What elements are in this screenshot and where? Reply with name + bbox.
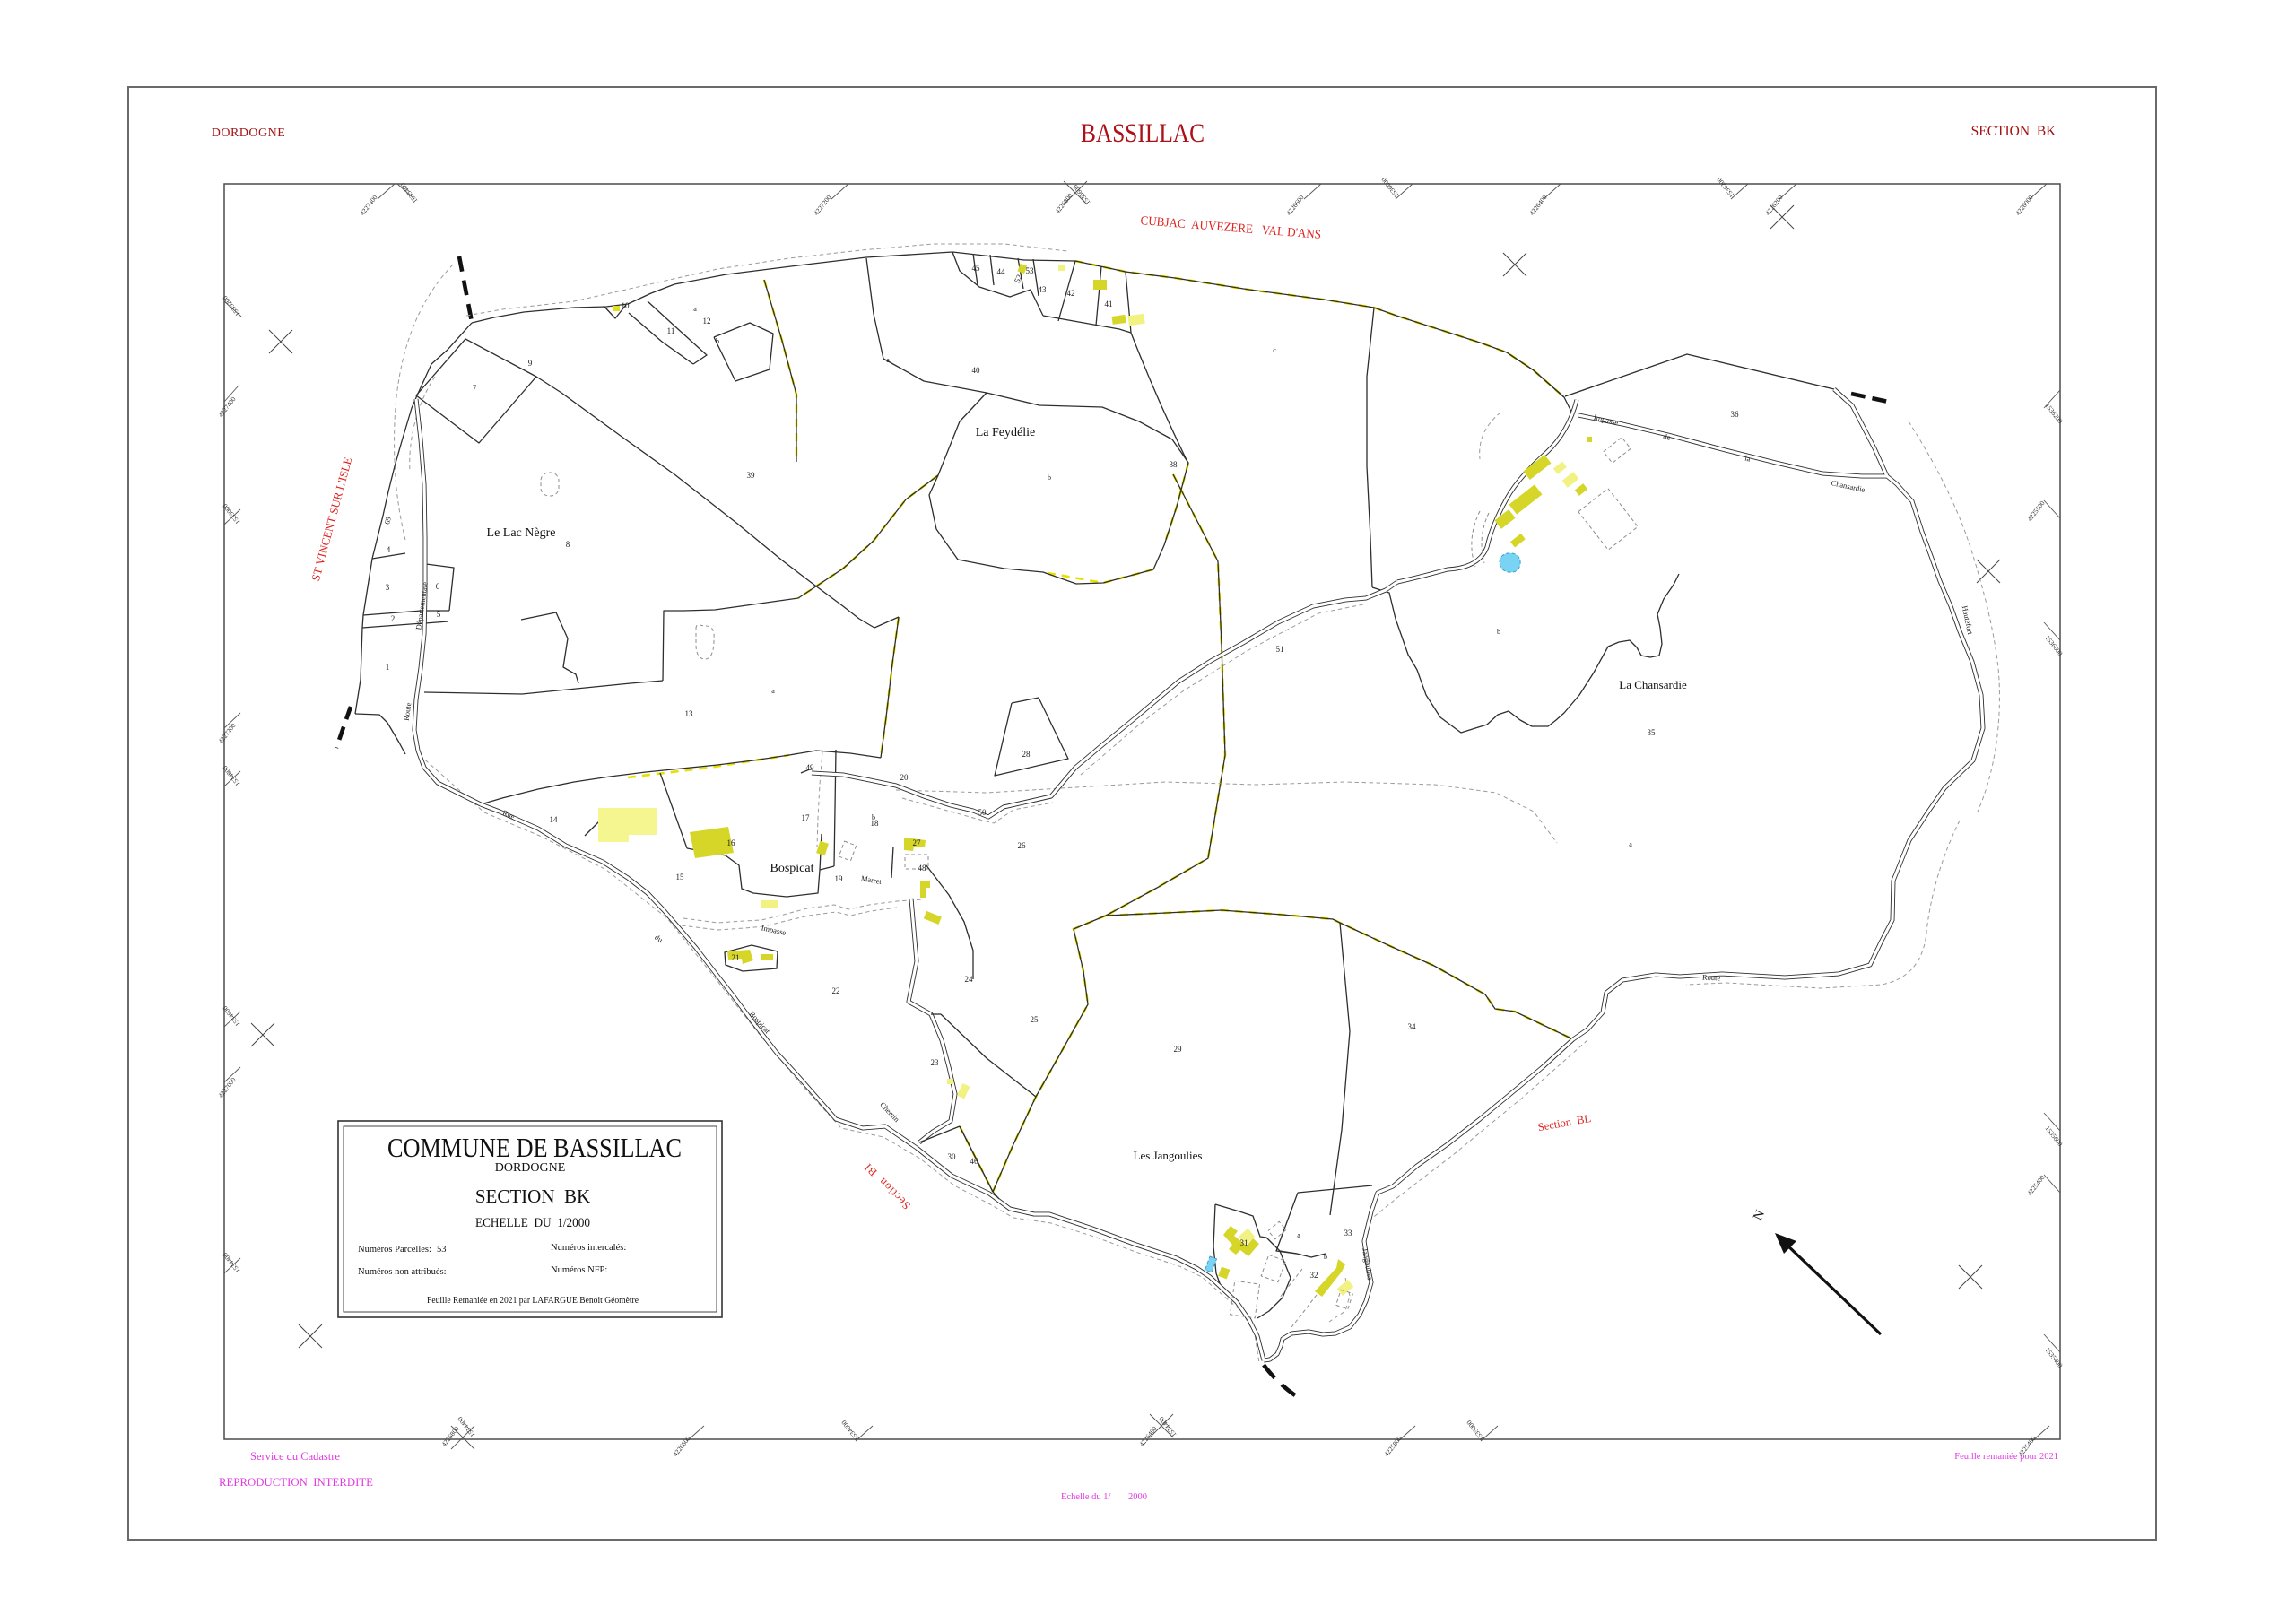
svg-text:3: 3 [386, 583, 390, 592]
svg-text:La Chansardie: La Chansardie [1619, 678, 1687, 691]
svg-text:53: 53 [437, 1245, 447, 1255]
svg-text:38: 38 [1170, 460, 1178, 469]
svg-text:26: 26 [1018, 841, 1027, 850]
svg-text:46: 46 [970, 1157, 979, 1166]
svg-text:30: 30 [948, 1152, 957, 1161]
svg-text:REPRODUCTION INTERDITE: REPRODUCTION INTERDITE [219, 1475, 373, 1489]
svg-text:COMMUNE DE BASSILLAC: COMMUNE DE BASSILLAC [387, 1132, 682, 1163]
svg-text:Numéros Parcelles:: Numéros Parcelles: [358, 1245, 431, 1255]
svg-text:14: 14 [550, 815, 559, 824]
svg-text:2: 2 [391, 614, 396, 623]
svg-text:a: a [1297, 1231, 1300, 1239]
svg-text:29: 29 [1174, 1045, 1183, 1054]
svg-text:a: a [1629, 840, 1632, 848]
svg-text:45: 45 [972, 264, 981, 273]
svg-text:a: a [886, 356, 890, 364]
svg-text:a: a [693, 305, 697, 313]
svg-text:31: 31 [1240, 1238, 1248, 1247]
svg-text:42: 42 [1067, 289, 1075, 298]
svg-text:DORDOGNE: DORDOGNE [495, 1161, 566, 1175]
svg-text:Echelle du 1/: Echelle du 1/ [1061, 1492, 1110, 1502]
svg-text:36: 36 [1731, 410, 1740, 419]
svg-text:48: 48 [918, 864, 927, 873]
svg-text:50: 50 [978, 808, 987, 817]
svg-text:32: 32 [1310, 1271, 1318, 1280]
svg-text:Service du Cadastre: Service du Cadastre [250, 1450, 340, 1463]
svg-text:b: b [1497, 628, 1500, 636]
svg-text:34: 34 [1408, 1022, 1417, 1031]
svg-text:22: 22 [832, 986, 840, 995]
svg-text:Numéros intercalés:: Numéros intercalés: [551, 1243, 626, 1253]
svg-text:Bospicat: Bospicat [770, 862, 814, 875]
svg-text:b: b [716, 337, 719, 345]
svg-text:4: 4 [387, 545, 391, 554]
svg-text:ECHELLE DU 1/2000: ECHELLE DU 1/2000 [475, 1216, 590, 1230]
svg-text:15: 15 [676, 873, 685, 881]
svg-text:Feuille remaniée pour 2021: Feuille remaniée pour 2021 [1954, 1452, 2058, 1462]
svg-text:1: 1 [386, 663, 390, 672]
svg-text:SECTION BK: SECTION BK [1971, 124, 2057, 139]
svg-text:b: b [1324, 1253, 1327, 1261]
svg-text:11: 11 [667, 326, 675, 335]
svg-text:16: 16 [727, 838, 736, 847]
svg-text:c: c [1273, 346, 1276, 354]
svg-text:7: 7 [473, 384, 477, 393]
svg-text:17: 17 [802, 813, 811, 822]
svg-text:39: 39 [747, 471, 756, 480]
svg-text:43: 43 [1039, 285, 1048, 294]
svg-text:41: 41 [1105, 300, 1113, 308]
svg-text:6: 6 [436, 582, 440, 591]
svg-text:21: 21 [732, 953, 740, 962]
svg-text:Le Lac Nègre: Le Lac Nègre [487, 526, 556, 540]
svg-text:Feuille Remaniée en 2021 par L: Feuille Remaniée en 2021 par LAFARGUE Be… [427, 1295, 639, 1306]
svg-text:DORDOGNE: DORDOGNE [212, 126, 286, 140]
svg-text:8: 8 [566, 540, 570, 549]
svg-text:20: 20 [900, 773, 909, 782]
svg-text:33: 33 [1344, 1229, 1353, 1238]
svg-text:35: 35 [1648, 728, 1657, 737]
svg-text:13: 13 [685, 709, 694, 718]
svg-text:51: 51 [1276, 645, 1284, 654]
svg-text:40: 40 [972, 366, 981, 375]
svg-text:b: b [872, 813, 875, 821]
svg-text:9: 9 [528, 359, 533, 368]
svg-text:2000: 2000 [1128, 1492, 1147, 1502]
svg-text:SECTION BK: SECTION BK [475, 1185, 590, 1207]
svg-text:44: 44 [997, 267, 1006, 276]
svg-text:5: 5 [437, 610, 441, 619]
svg-text:23: 23 [931, 1058, 940, 1067]
svg-text:Numéros NFP:: Numéros NFP: [551, 1265, 607, 1275]
svg-text:Route: Route [1702, 973, 1721, 983]
svg-text:Numéros non attribués:: Numéros non attribués: [358, 1267, 447, 1277]
svg-text:BASSILLAC: BASSILLAC [1081, 118, 1205, 148]
svg-text:a: a [771, 687, 775, 695]
svg-text:24: 24 [965, 975, 974, 984]
svg-text:Les Jangoulies: Les Jangoulies [1134, 1149, 1203, 1162]
svg-text:12: 12 [703, 317, 711, 326]
svg-text:19: 19 [835, 874, 844, 883]
svg-text:27: 27 [913, 838, 922, 847]
svg-text:25: 25 [1031, 1015, 1039, 1024]
svg-text:10: 10 [622, 301, 631, 310]
svg-text:b: b [1048, 473, 1051, 482]
svg-text:49: 49 [806, 763, 815, 772]
svg-text:28: 28 [1022, 750, 1031, 759]
svg-text:La Feydélie: La Feydélie [976, 426, 1035, 439]
svg-text:53: 53 [1026, 266, 1035, 275]
